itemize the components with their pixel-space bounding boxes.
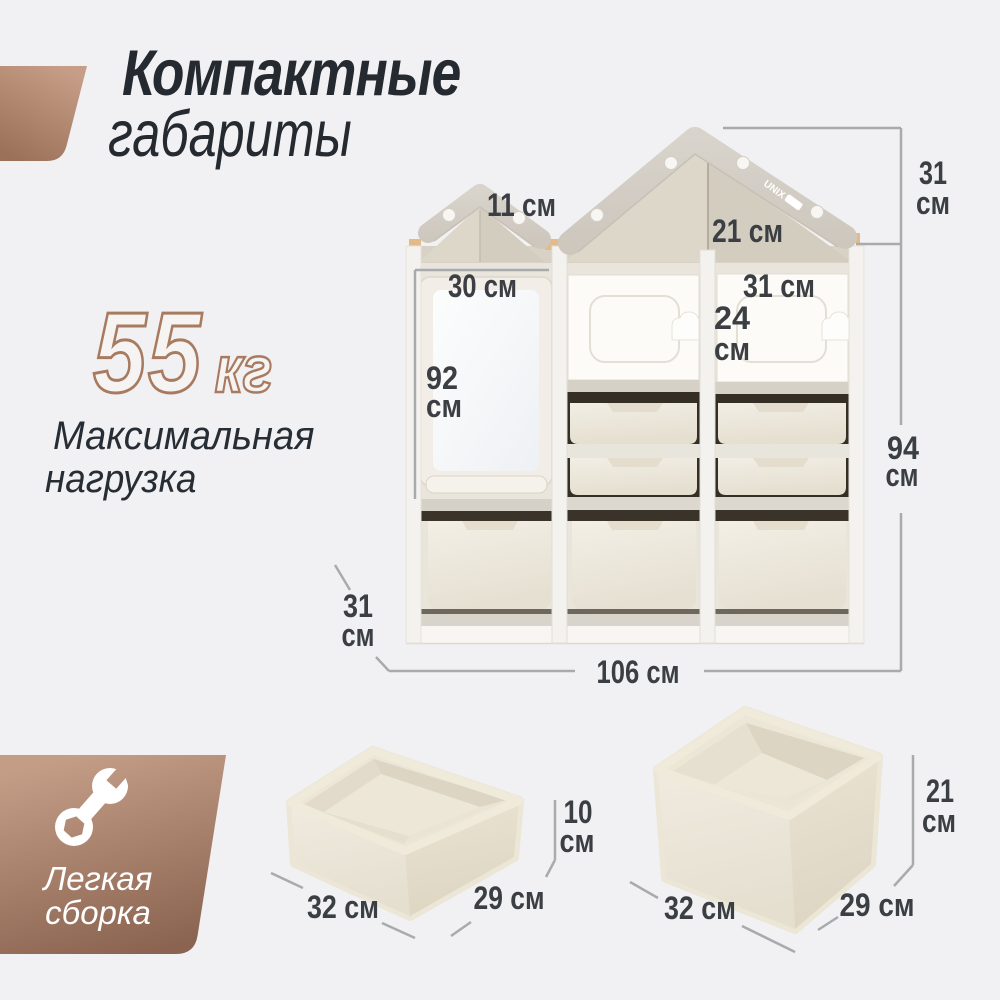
svg-text:см: см xyxy=(886,457,919,493)
svg-text:31 см: 31 см xyxy=(743,268,815,304)
svg-text:см: см xyxy=(922,803,956,839)
svg-text:см: см xyxy=(916,185,950,221)
svg-text:29 см: 29 см xyxy=(474,880,545,916)
svg-text:21 см: 21 см xyxy=(712,213,783,249)
svg-text:см: см xyxy=(342,617,375,653)
svg-text:11 см: 11 см xyxy=(487,187,556,223)
svg-text:см: см xyxy=(560,823,595,859)
svg-text:32 см: 32 см xyxy=(307,889,379,925)
svg-text:см: см xyxy=(714,331,750,367)
svg-text:см: см xyxy=(426,388,462,424)
svg-text:106 см: 106 см xyxy=(597,654,680,690)
svg-text:29 см: 29 см xyxy=(840,887,915,923)
svg-text:30 см: 30 см xyxy=(448,268,517,304)
svg-text:32 см: 32 см xyxy=(664,890,736,926)
